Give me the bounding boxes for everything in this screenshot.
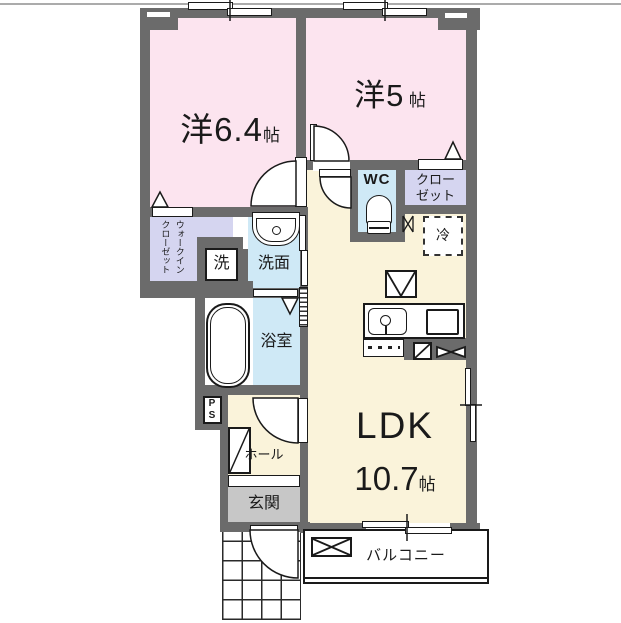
column-mark-top-left xyxy=(147,12,170,17)
entrance-step xyxy=(228,475,300,487)
balcony-window-pane-b xyxy=(405,527,452,534)
bedroom1-name: 洋6.4 xyxy=(180,111,263,148)
washroom-label: 洗面 xyxy=(248,256,300,273)
balcony-washer-pan xyxy=(311,537,352,557)
entrance-door-leaf xyxy=(250,525,298,534)
bedroom2-door-leaf xyxy=(310,124,317,161)
water-heater-icon xyxy=(413,342,432,360)
wc-label: WC xyxy=(358,172,396,188)
entrance-porch-tiles xyxy=(222,532,301,620)
bedroom1-label: 洋6.4帖 xyxy=(165,96,295,147)
kitchen-faucet-icon xyxy=(380,315,391,326)
entrance-label: 玄関 xyxy=(228,496,300,513)
bathroom-label: 浴室 xyxy=(253,334,300,351)
bathroom-sliding-door xyxy=(253,289,298,297)
top-border-line xyxy=(0,3,621,5)
stove-icon xyxy=(426,309,459,335)
hall-door-leaf xyxy=(298,398,308,443)
wall-bath-bottom xyxy=(195,385,308,395)
column-mark-top-right xyxy=(445,13,467,18)
bedroom2-name: 洋5 xyxy=(354,78,404,113)
wall-hall-left xyxy=(220,430,228,530)
balcony-inner-line xyxy=(305,577,487,579)
wall-right xyxy=(466,8,477,533)
washroom-sliding-door-b xyxy=(301,250,308,286)
walk-in-closet-label: ウォークイン クローゼット xyxy=(158,220,187,280)
balcony-window-pane-a xyxy=(362,521,409,528)
wall-closet-bottom xyxy=(396,205,466,214)
floorplan: 洋6.4帖 洋5 帖 LDK 10.7帖 WC クロー ゼット ウォークイン ク… xyxy=(0,0,621,623)
bedroom1-door-leaf xyxy=(295,157,307,207)
toilet-tank-line xyxy=(369,227,389,229)
hall-label: ホール xyxy=(228,448,300,462)
bedroom2-unit: 帖 xyxy=(409,91,426,110)
washroom-sliding-door-a xyxy=(299,215,306,251)
refrigerator-label: 冷 xyxy=(423,228,463,243)
ldk-size: 10.7 xyxy=(354,460,418,497)
wall-wc-closet-mid xyxy=(396,160,405,242)
bedroom2-label: 洋5 帖 xyxy=(330,63,450,112)
closet-label: クロー ゼット xyxy=(405,172,466,203)
bathroom-louver-window xyxy=(299,287,308,327)
wall-bath-left xyxy=(195,292,205,395)
closet-sliding-door xyxy=(418,159,463,170)
washer-label: 洗 xyxy=(205,256,238,273)
bedroom1-unit: 帖 xyxy=(263,126,280,145)
column-top-right xyxy=(438,8,480,30)
balcony-label: バルコニー xyxy=(356,548,456,564)
wc-door-leaf xyxy=(319,169,351,177)
wall-washer-right xyxy=(238,249,248,283)
ldk-label: LDK 10.7帖 xyxy=(325,390,465,497)
kitchen-counter-dashes xyxy=(368,346,400,349)
bedroom2-window-pane-b xyxy=(382,8,427,16)
ldk-name: LDK xyxy=(356,405,434,446)
wic-sliding-door xyxy=(152,207,193,217)
washroom-faucet-icon xyxy=(272,226,281,235)
bedroom1-window-pane-b xyxy=(227,8,272,16)
ldk-right-window-pane-b xyxy=(470,404,476,442)
range-hood-icon xyxy=(385,270,417,298)
ldk-right-window-pane-a xyxy=(465,368,471,406)
wall-left xyxy=(140,8,150,292)
pipe-space-label: PS xyxy=(206,398,218,421)
bathtub-inner-line xyxy=(210,307,246,384)
wall-wic-washer-left xyxy=(197,249,205,283)
ldk-unit: 帖 xyxy=(419,475,436,494)
kitchen-faucet-stem xyxy=(385,326,387,334)
